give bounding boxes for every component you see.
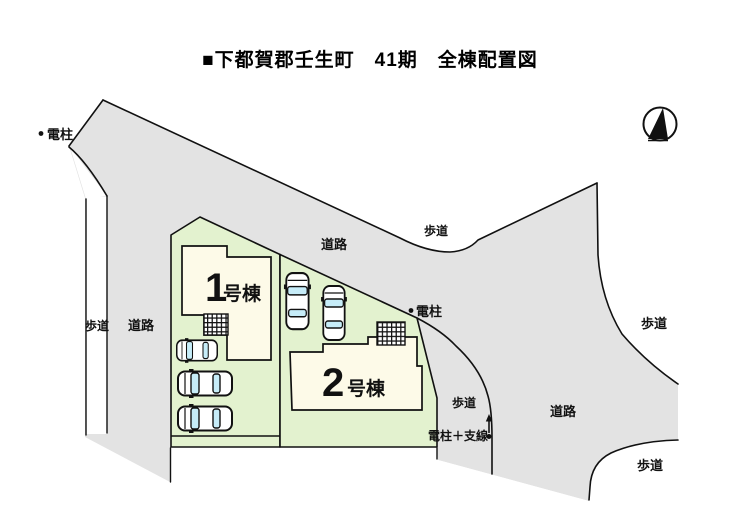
sidewalk-label-top: 歩道 xyxy=(424,223,448,238)
entrance-hatch-building-2 xyxy=(377,322,405,345)
utility-pole-dot-top-left xyxy=(39,131,44,136)
road-label-top: 道路 xyxy=(321,237,348,252)
road-label-left: 道路 xyxy=(128,318,155,333)
utility-pole-label-center: 電柱 xyxy=(416,304,442,319)
site-plan-svg: ■下都賀郡壬生町 41期 全棟配置図 歩道 道路 道路 歩道 電柱 電柱 歩道 … xyxy=(0,0,740,523)
building-2-suffix: 号棟 xyxy=(347,377,386,400)
site-plan-page: ■下都賀郡壬生町 41期 全棟配置図 歩道 道路 道路 歩道 電柱 電柱 歩道 … xyxy=(0,0,740,523)
car-lot2-left xyxy=(284,273,311,329)
north-arrow-icon xyxy=(644,108,677,141)
entrance-hatch-building-1 xyxy=(204,314,228,335)
road-label-bottom-right: 道路 xyxy=(550,404,577,419)
car-lot1-bottom xyxy=(178,404,232,433)
utility-pole-label-top-left: 電柱 xyxy=(47,127,73,142)
utility-pole-dot-center xyxy=(409,308,414,313)
car-lot1-middle xyxy=(178,369,232,398)
sidewalk-strip-left xyxy=(87,197,108,434)
utility-pole-guy-wire-label: 電柱＋支線 xyxy=(428,428,488,443)
car-lot1-small xyxy=(177,338,218,363)
sidewalk-label-left: 歩道 xyxy=(85,318,109,333)
sidewalk-label-right: 歩道 xyxy=(641,316,667,331)
building-1-suffix: 号棟 xyxy=(223,282,262,305)
building-2-number: 2 xyxy=(322,361,344,405)
sidewalk-label-bottom-right: 歩道 xyxy=(637,458,663,473)
sidewalk-label-right-mid: 歩道 xyxy=(452,395,476,410)
page-title: ■下都賀郡壬生町 41期 全棟配置図 xyxy=(202,48,538,71)
car-lot2-right xyxy=(321,286,347,340)
